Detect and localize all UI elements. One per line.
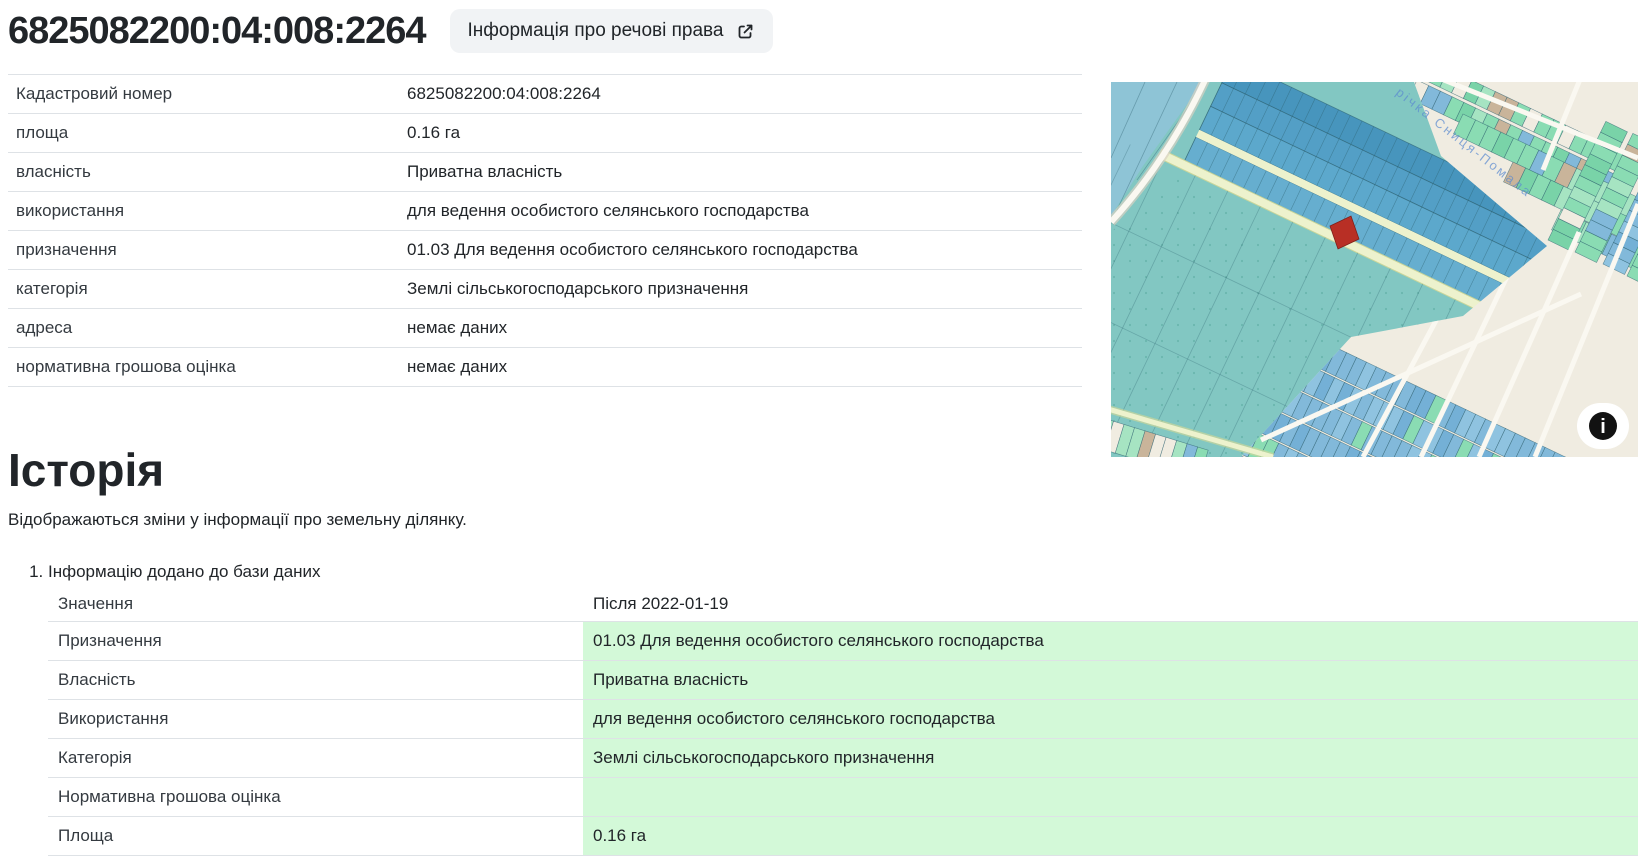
svg-text:i: i (1600, 416, 1606, 438)
history-label: Використання (48, 699, 583, 738)
detail-label: площа (8, 114, 399, 153)
table-row: Значення Після 2022-01-19 (48, 587, 1638, 622)
table-row: Площа0.16 га (48, 816, 1638, 855)
history-entry: Інформацію додано до бази даних Значення… (48, 562, 1638, 856)
external-link-icon (736, 22, 755, 41)
history-change-table: Значення Після 2022-01-19 Призначення01.… (48, 587, 1638, 856)
detail-value: для ведення особистого селянського госпо… (399, 192, 1082, 231)
history-label: Категорія (48, 738, 583, 777)
cadastral-map[interactable]: річка Сниця-Помала i (1111, 82, 1638, 457)
detail-label: нормативна грошова оцінка (8, 348, 399, 387)
history-description: Відображаються зміни у інформації про зе… (8, 510, 1638, 530)
history-label: Площа (48, 816, 583, 855)
table-row: КатегоріяЗемлі сільськогосподарського пр… (48, 738, 1638, 777)
detail-label: використання (8, 192, 399, 231)
map-info-button[interactable]: i (1577, 403, 1629, 449)
table-row: Використаннядля ведення особистого селян… (48, 699, 1638, 738)
detail-label: власність (8, 153, 399, 192)
detail-value: 01.03 Для ведення особистого селянського… (399, 231, 1082, 270)
parcel-details-table: Кадастровий номер6825082200:04:008:2264 … (8, 74, 1082, 387)
detail-value: Землі сільськогосподарського призначення (399, 270, 1082, 309)
table-row: нормативна грошова оцінканемає даних (8, 348, 1082, 387)
detail-value: 6825082200:04:008:2264 (399, 75, 1082, 114)
detail-value: немає даних (399, 309, 1082, 348)
history-label: Власність (48, 660, 583, 699)
table-row: категоріяЗемлі сільськогосподарського пр… (8, 270, 1082, 309)
history-col-header: Після 2022-01-19 (583, 587, 1638, 622)
table-row: призначення01.03 Для ведення особистого … (8, 231, 1082, 270)
table-row: Кадастровий номер6825082200:04:008:2264 (8, 75, 1082, 114)
history-col-header: Значення (48, 587, 583, 622)
history-entry-title: Інформацію додано до бази даних (48, 562, 1638, 582)
table-row: адресанемає даних (8, 309, 1082, 348)
detail-label: Кадастровий номер (8, 75, 399, 114)
history-list: Інформацію додано до бази даних Значення… (0, 562, 1638, 856)
detail-label: призначення (8, 231, 399, 270)
detail-label: категорія (8, 270, 399, 309)
history-value: 0.16 га (583, 816, 1638, 855)
detail-value: Приватна власність (399, 153, 1082, 192)
page-title: 6825082200:04:008:2264 (8, 8, 426, 54)
history-label: Нормативна грошова оцінка (48, 777, 583, 816)
history-value: Землі сільськогосподарського призначення (583, 738, 1638, 777)
table-row: площа0.16 га (8, 114, 1082, 153)
history-value (583, 777, 1638, 816)
table-row: Нормативна грошова оцінка (48, 777, 1638, 816)
history-value: Приватна власність (583, 660, 1638, 699)
history-value: 01.03 Для ведення особистого селянського… (583, 621, 1638, 660)
detail-label: адреса (8, 309, 399, 348)
property-rights-button-label: Інформація про речові права (468, 20, 724, 42)
history-value: для ведення особистого селянського госпо… (583, 699, 1638, 738)
table-row: Призначення01.03 Для ведення особистого … (48, 621, 1638, 660)
table-row: використаннядля ведення особистого селян… (8, 192, 1082, 231)
property-rights-button[interactable]: Інформація про речові права (450, 9, 773, 53)
detail-value: 0.16 га (399, 114, 1082, 153)
table-row: ВласністьПриватна власність (48, 660, 1638, 699)
table-row: власністьПриватна власність (8, 153, 1082, 192)
page-header: 6825082200:04:008:2264 Інформація про ре… (0, 0, 1638, 54)
history-label: Призначення (48, 621, 583, 660)
detail-value: немає даних (399, 348, 1082, 387)
